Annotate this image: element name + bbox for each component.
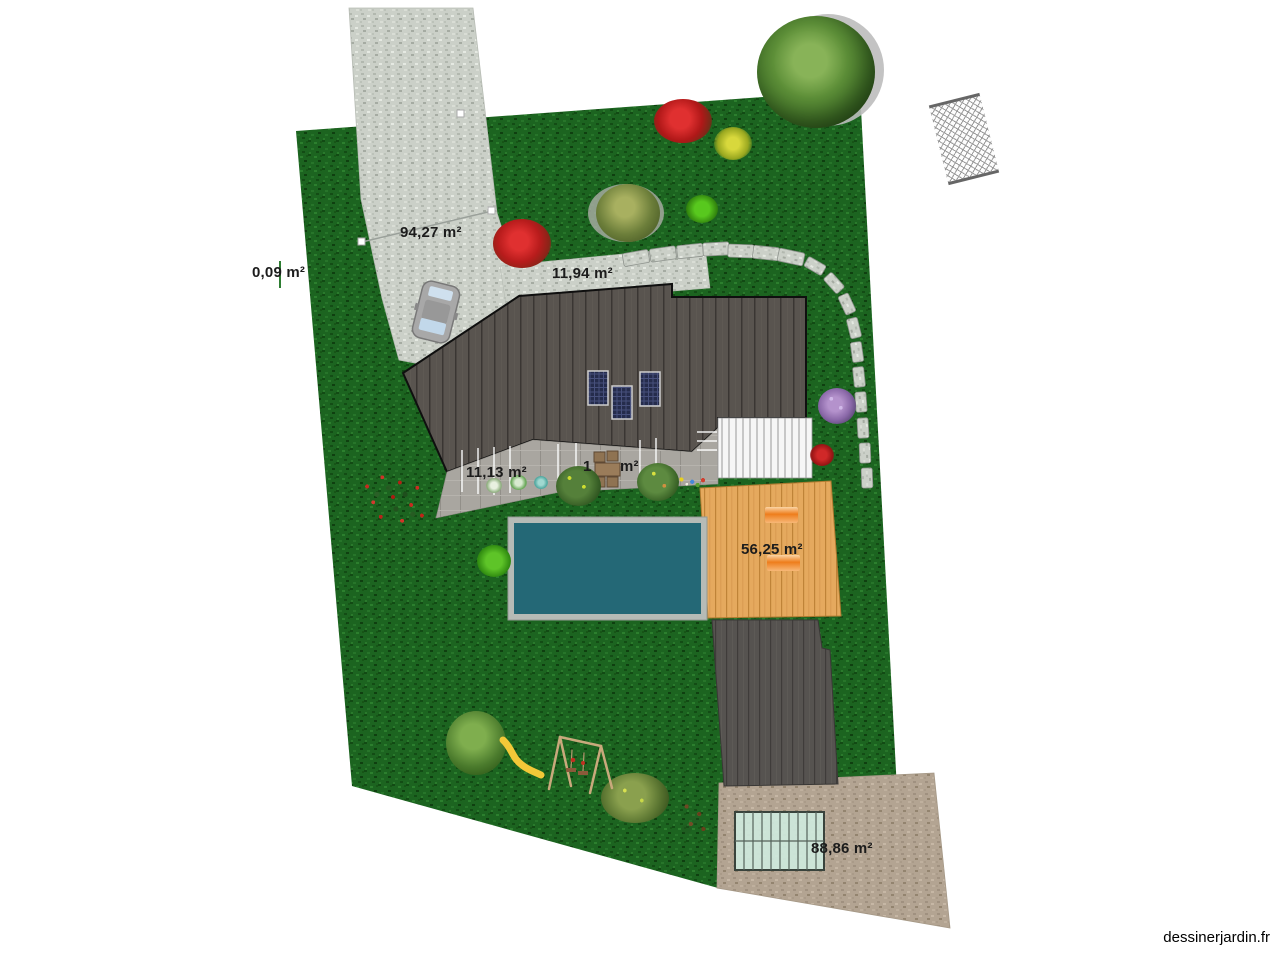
slide[interactable] [503,740,541,775]
toy-dot [581,761,585,765]
area-label-left-boundary: 0,09 m² [252,264,305,281]
area-label-deck: 56,25 m² [741,541,803,558]
toy-dot [571,758,576,763]
area-label-patio-prefix: 1 [583,458,592,475]
area-label-front-path: 11,94 m² [552,265,613,282]
area-label-driveway: 94,27 m² [400,224,462,241]
swing-set[interactable] [549,737,612,793]
plan-equipment-layer [0,0,1280,960]
area-label-rear-gravel: 88,86 m² [811,840,873,857]
area-label-terrace: 11,13 m² [466,464,527,481]
area-label-patio-unit: m² [620,458,639,475]
swing-seat [566,768,576,772]
swing-seat [578,771,588,775]
watermark: dessinerjardin.fr [1163,929,1270,946]
garden-plan-canvas: 94,27 m² 0,09 m² 11,94 m² 11,13 m² 1 m² … [0,0,1280,960]
